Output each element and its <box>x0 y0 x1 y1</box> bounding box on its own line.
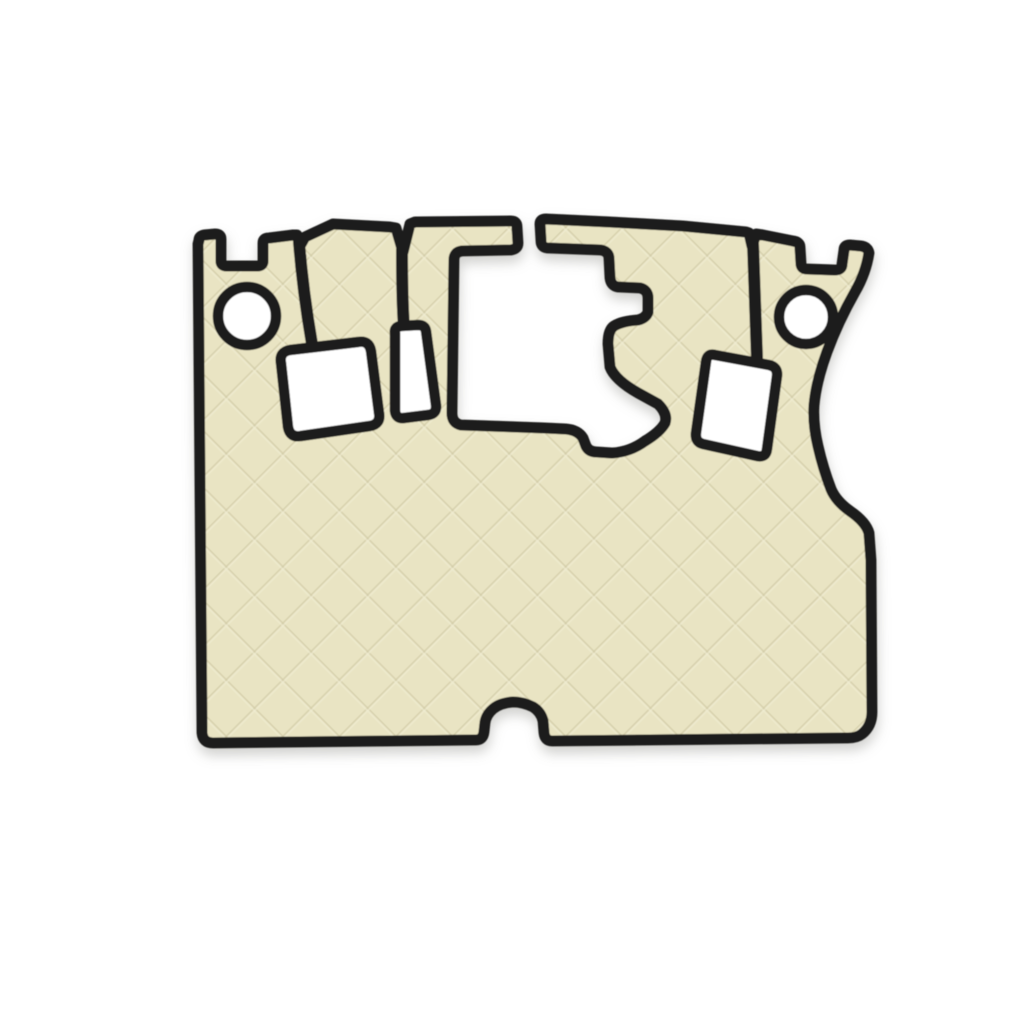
narrow-slot-cutout <box>395 325 436 418</box>
seam-middle <box>402 250 404 328</box>
right-tilted-cutout <box>696 355 777 457</box>
product-photo-canvas <box>0 0 1024 1024</box>
left-round-hole <box>218 287 276 345</box>
floor-mat <box>198 219 872 743</box>
floor-mat-illustration <box>0 0 1024 1024</box>
left-square-cutout <box>281 342 380 437</box>
seam-right <box>753 244 757 358</box>
right-round-hole <box>779 290 833 344</box>
